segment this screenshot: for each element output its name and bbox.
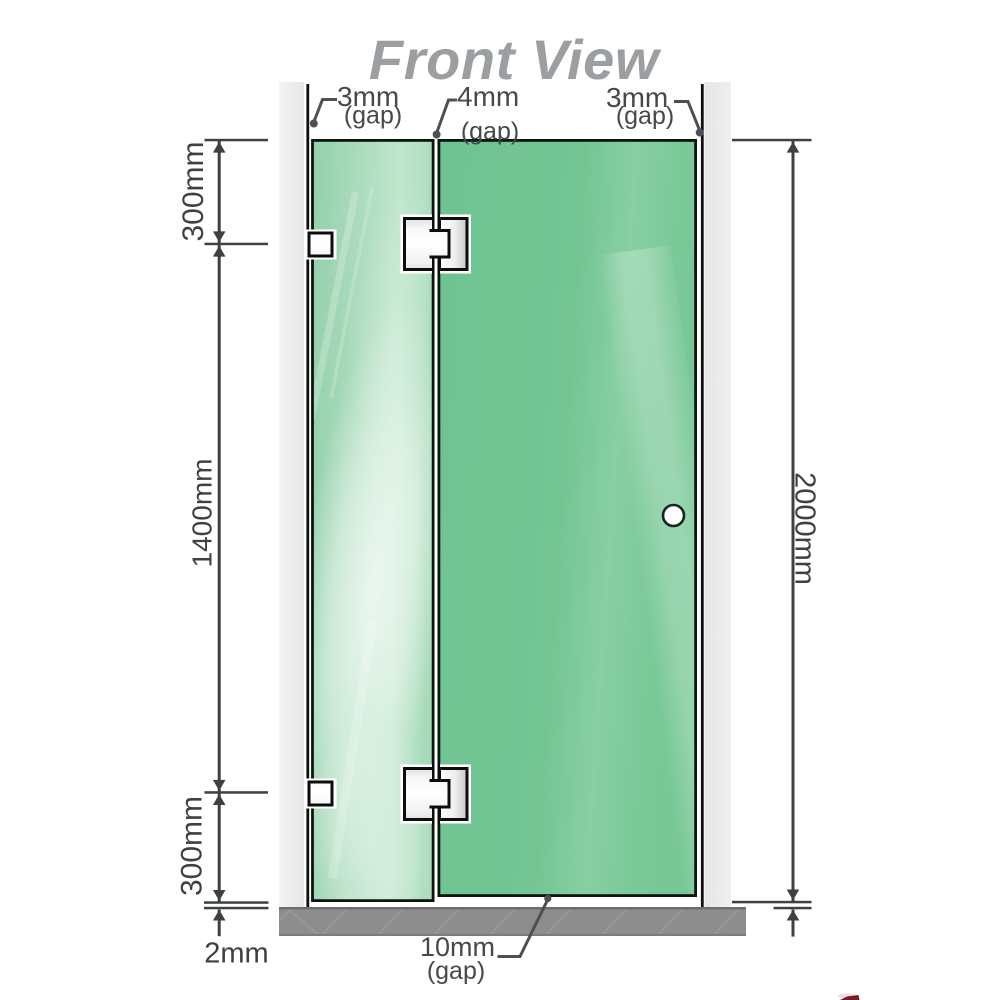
svg-text:(gap): (gap) [461,118,519,146]
svg-text:2000mm: 2000mm [789,472,821,585]
svg-text:2mm: 2mm [204,938,268,970]
svg-text:300mm: 300mm [177,141,210,241]
svg-text:300mm: 300mm [176,796,209,896]
svg-text:4mm: 4mm [457,81,519,112]
svg-text:1400mm: 1400mm [187,459,218,568]
svg-text:(gap): (gap) [616,102,674,130]
svg-text:(gap): (gap) [344,102,402,130]
svg-text:(gap): (gap) [427,957,485,985]
